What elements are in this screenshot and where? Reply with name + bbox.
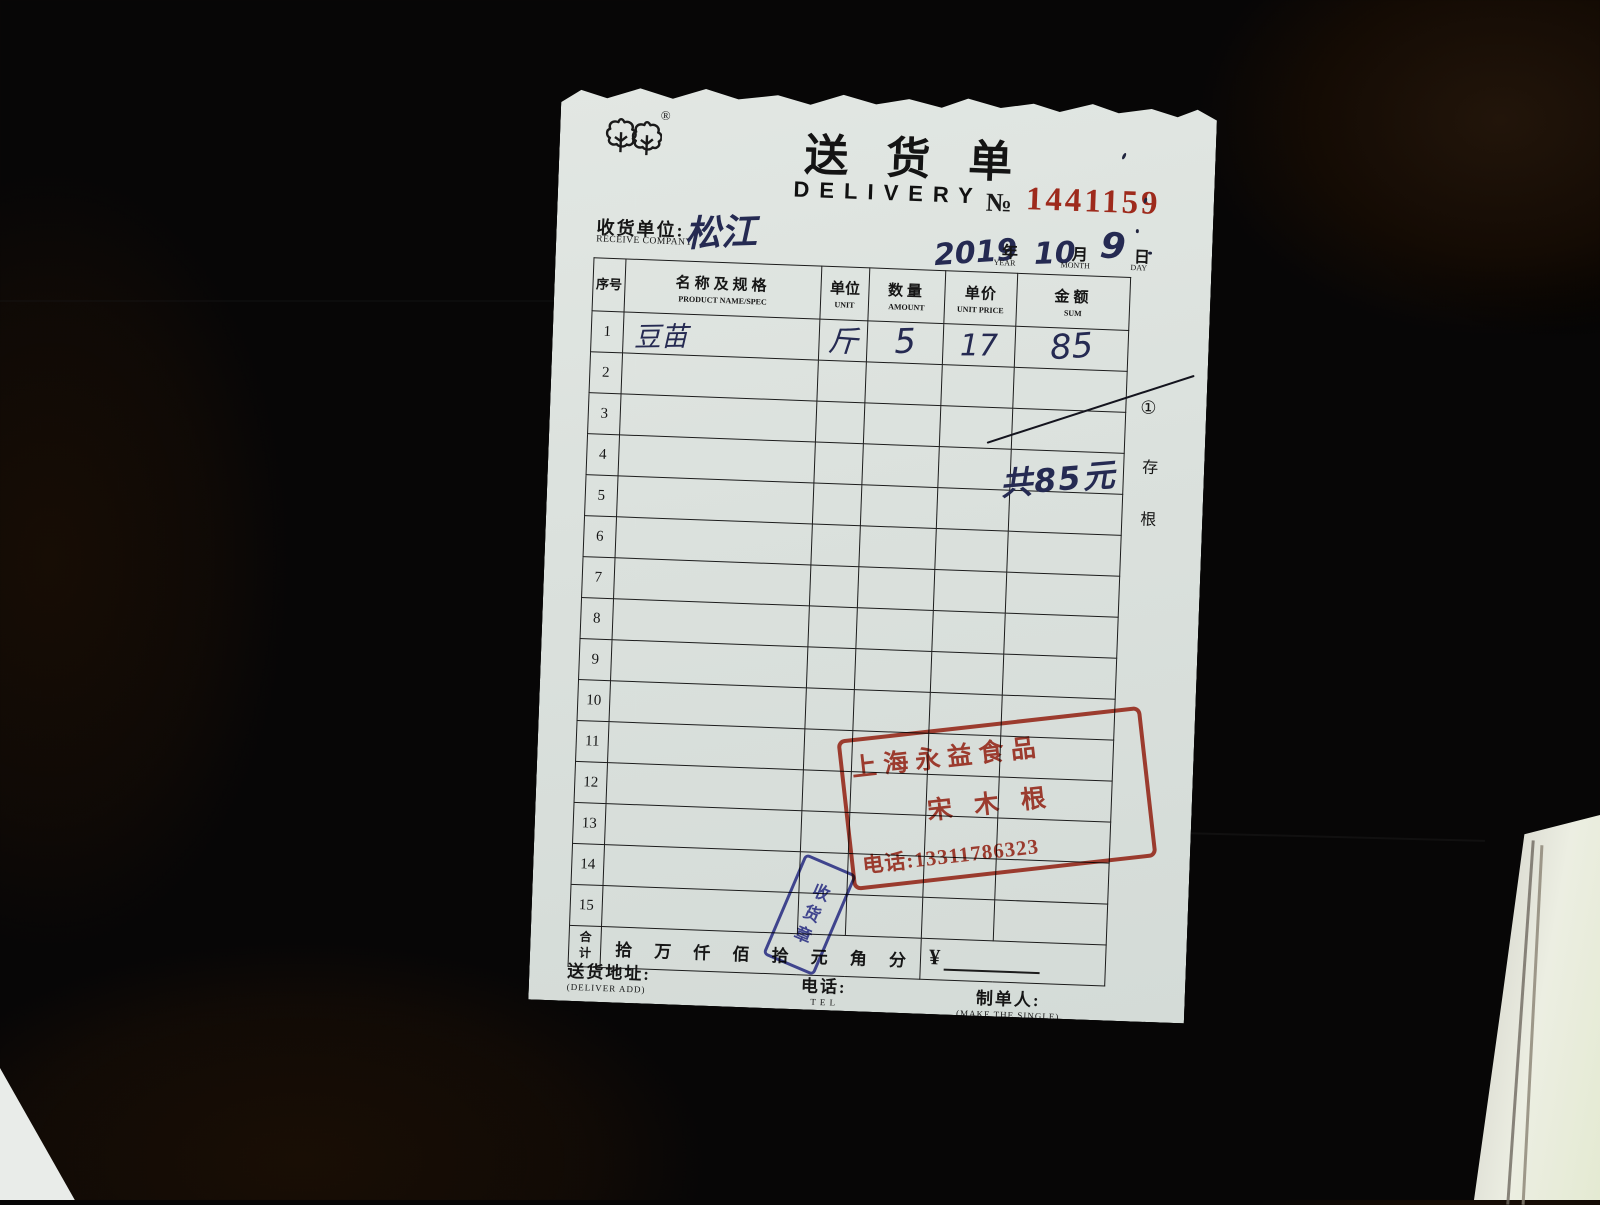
row-cell-name: [603, 845, 800, 893]
row-cell-amount: [845, 894, 922, 938]
registered-trademark: ®: [660, 108, 670, 124]
row-cell-amount: [853, 690, 930, 734]
row-number: 4: [586, 434, 619, 476]
total-digit-char: 佰: [732, 939, 750, 965]
row-cell-name: [614, 558, 811, 606]
row-cell-amount: 5: [866, 321, 943, 365]
footer-deliver-address: 送货地址: (DELIVER ADD): [567, 957, 652, 995]
row-cell-name: [606, 763, 803, 811]
row-cell-name: [609, 681, 806, 729]
row-cell-sum: [1004, 613, 1118, 658]
row-cell-unit: [815, 401, 864, 444]
row-cell-name: [605, 804, 802, 852]
header-sum: 金额SUM: [1016, 273, 1131, 330]
background-paper-corner: [0, 1050, 110, 1200]
total-digit-char: 仟: [693, 938, 711, 964]
row-cell-amount: [863, 403, 940, 447]
row-cell-unit: [811, 524, 860, 567]
row-cell-unit: 斤: [818, 319, 867, 362]
receiver-label-en: RECEIVE COMPANY: [596, 234, 693, 248]
row-number: 9: [579, 639, 612, 681]
date-day-handwritten: 9: [1098, 225, 1127, 268]
row-cell-unit_price: [936, 488, 1009, 532]
row-cell-sum: [1005, 572, 1119, 617]
row-cell-name: [621, 353, 818, 401]
row-cell-sum: [1013, 367, 1127, 412]
row-cell-name: [611, 640, 808, 688]
currency-blank-line: [944, 949, 1041, 975]
row-cell-name: [618, 435, 815, 483]
row-number: 8: [580, 598, 613, 640]
row-number: 2: [589, 352, 622, 394]
receiver-handwritten-value: 松江: [684, 203, 758, 257]
row-cell-sum: [1002, 654, 1116, 699]
row-cell-sum: 85: [1014, 326, 1128, 371]
row-cell-name: [615, 517, 812, 565]
row-cell-amount: [859, 526, 936, 570]
row-cell-unit_price: [939, 406, 1012, 450]
footer-make-single: 制单人: (MAKE THE SINGLE): [956, 983, 1061, 1022]
row-cell-unit: [808, 606, 857, 649]
row-cell-unit_price: [933, 569, 1006, 613]
clipboard-seam: [0, 300, 555, 302]
row-number: 11: [576, 720, 609, 762]
header-seq: 序号: [592, 258, 626, 312]
handwritten-sum: 85: [1014, 323, 1128, 371]
ink-speck: [1121, 152, 1127, 160]
row-cell-name: [612, 599, 809, 647]
row-cell-amount: [865, 362, 942, 406]
printer-brand-sidetext: 强林纸品: [528, 664, 543, 708]
clipboard-seam: [1185, 832, 1485, 842]
row-cell-unit: [800, 811, 849, 854]
row-cell-amount: [856, 608, 933, 652]
stub-label-char: 存: [1142, 454, 1159, 479]
row-number: 6: [583, 516, 616, 558]
row-cell-unit: [812, 483, 861, 526]
row-cell-unit: [806, 647, 855, 690]
row-cell-unit_price: [932, 610, 1005, 654]
row-cell-unit_price: [930, 651, 1003, 695]
row-cell-name: [602, 886, 799, 934]
total-digit-char: 分: [889, 945, 907, 971]
row-cell-sum: [1007, 531, 1121, 576]
date-year-en: YEAR: [993, 258, 1015, 268]
handwritten-unit: 斤: [818, 315, 868, 362]
handwritten-name: 豆苗: [624, 312, 820, 354]
blue-stamp-text: 收货章: [785, 878, 835, 951]
row-cell-name: 豆苗: [623, 312, 820, 360]
row-cell-amount: [862, 444, 939, 488]
copy-number: ①: [1140, 397, 1157, 419]
footer-telephone: 电话: T E L: [800, 971, 847, 1008]
header-unitprice: 单价UNIT PRICE: [944, 271, 1018, 327]
row-cell-amount: [860, 485, 937, 529]
row-number: 15: [570, 884, 603, 926]
total-digit-char: 角: [849, 944, 867, 970]
row-number: 3: [588, 393, 621, 435]
row-number: 7: [582, 557, 615, 599]
row-cell-name: [620, 394, 817, 442]
row-cell-unit_price: [921, 897, 994, 941]
row-number: 1: [591, 311, 624, 353]
stub-label-char: 根: [1140, 505, 1157, 530]
header-amount: 数量AMOUNT: [868, 268, 946, 324]
total-digit-char: 拾: [615, 935, 633, 961]
row-number: 12: [574, 761, 607, 803]
date-day-en: DAY: [1130, 263, 1147, 273]
row-cell-unit_price: [935, 529, 1008, 573]
handwritten-unit_price: 17: [944, 328, 1015, 363]
header-product: 名称及规格PRODUCT NAME/SPEC: [624, 259, 822, 319]
row-cell-name: [617, 476, 814, 524]
row-cell-amount: [854, 649, 931, 693]
row-number: 13: [573, 802, 606, 844]
total-currency-cell: ¥: [920, 938, 1106, 986]
header-unit: 单位UNIT: [820, 266, 870, 321]
row-number: 10: [577, 680, 610, 722]
brand-trees-logo: [603, 112, 663, 162]
serial-number-label: №: [985, 188, 1012, 219]
total-digit-char: 万: [654, 936, 672, 962]
row-cell-unit: [805, 688, 854, 731]
row-number: 5: [585, 475, 618, 517]
row-number: 14: [571, 843, 604, 885]
row-cell-sum: [993, 900, 1107, 945]
row-cell-unit_price: [941, 365, 1014, 409]
ink-speck: [1136, 229, 1139, 233]
row-cell-unit_price: 17: [942, 324, 1015, 368]
serial-number-value: 1441159: [1025, 181, 1161, 223]
row-cell-amount: [857, 567, 934, 611]
handwritten-amount: 5: [867, 321, 943, 363]
row-cell-unit: [817, 360, 866, 403]
row-cell-unit: [814, 442, 863, 485]
currency-sign: ¥: [929, 944, 941, 970]
row-cell-name: [608, 722, 805, 770]
date-month-en: MONTH: [1060, 260, 1090, 270]
delivery-note: ® 送货单 DELIVERY № 1441159 收货单位: RECEIVE C…: [528, 80, 1217, 1023]
row-cell-unit: [809, 565, 858, 608]
